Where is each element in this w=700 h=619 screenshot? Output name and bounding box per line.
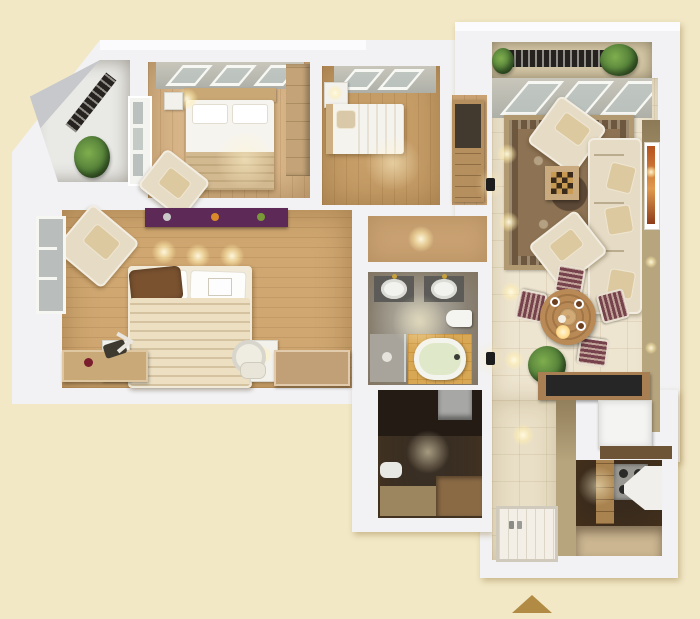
sofa [588, 138, 642, 314]
wall-sconce-icon [486, 178, 495, 191]
cabinet-drawers [455, 152, 481, 198]
media-console [546, 375, 642, 396]
painting-art [647, 146, 655, 224]
shelf-item [163, 213, 171, 221]
master-window [36, 216, 66, 314]
downlight [152, 240, 176, 264]
table-candle-glow [556, 325, 570, 339]
shelf-item [257, 213, 265, 221]
bed-pillow [336, 110, 356, 129]
kitchen-counter [600, 446, 672, 459]
floor-light [215, 130, 275, 190]
utility-toilet [380, 462, 402, 478]
door-glass [133, 102, 143, 124]
bed-headboard [326, 104, 333, 154]
window-pane-icon [377, 69, 425, 90]
bedroom-1-wardrobe [286, 64, 310, 176]
storage-chest [274, 350, 350, 386]
purple-wall-shelf [145, 208, 288, 227]
wall-painting [644, 142, 660, 230]
downlight [220, 244, 244, 268]
utility-wood-shelf [436, 476, 482, 516]
floor-light [578, 466, 618, 506]
floor-light [406, 430, 450, 474]
bedroom-2-window-band [334, 66, 436, 93]
window-pane-icon [209, 65, 257, 86]
shower-drain [382, 352, 392, 362]
wall-light [645, 256, 657, 268]
downlight [497, 144, 517, 164]
downlight [512, 424, 534, 446]
wrought-iron-railing-icon [500, 50, 606, 67]
armchair-pillow [553, 111, 592, 148]
bed-duvet [130, 298, 250, 386]
utility-room-floor [378, 390, 482, 518]
window-bar [39, 247, 57, 250]
armchair-pillow [548, 227, 585, 263]
chess-coffee-table [545, 166, 579, 200]
table-cup [574, 299, 584, 309]
pouf [240, 362, 266, 379]
ceiling-light [392, 294, 448, 350]
table-plate [558, 315, 566, 323]
potted-plant-icon [600, 44, 638, 76]
round-dining-table [540, 289, 596, 345]
table-cup [550, 297, 560, 307]
watermark-triangle-icon [512, 595, 552, 613]
table-cup [576, 321, 586, 331]
door-glass [133, 154, 143, 176]
floor-light [365, 135, 421, 191]
bed-pillow [192, 104, 228, 124]
toiletry-bottles [509, 521, 514, 529]
hallway-tv-cabinet [452, 100, 484, 202]
table-lamp-icon [327, 85, 343, 101]
downlight [499, 212, 519, 232]
bed-pillow [232, 104, 268, 124]
bed-book [208, 278, 232, 296]
potted-plant-icon [492, 48, 514, 74]
faucet-icon [442, 274, 447, 279]
refrigerator [598, 400, 652, 448]
bathroom-floor [368, 272, 478, 385]
window-pane-icon [165, 65, 213, 86]
shelf-item [211, 213, 219, 221]
entry-accent-wall [556, 400, 576, 556]
sink-basin [381, 279, 407, 299]
tv-panel [455, 104, 481, 148]
shower-tray [496, 506, 558, 562]
wall-light [645, 342, 657, 354]
downlight [504, 350, 524, 370]
faucet-icon [392, 274, 397, 279]
armchair-pillow [82, 223, 122, 262]
window-bar [39, 277, 57, 280]
toiletry-bottles [517, 521, 522, 529]
wall-top-face-left [100, 40, 366, 50]
armchair-pillow [157, 166, 193, 201]
wall-light [645, 166, 657, 178]
floorplan-canvas [0, 0, 700, 619]
door-glass [133, 128, 143, 150]
burner [619, 469, 628, 478]
chess-board [551, 172, 573, 194]
downlight [408, 226, 434, 252]
sofa-pillow [604, 204, 634, 236]
kitchen-floor-light [576, 526, 662, 556]
washing-machine [438, 390, 472, 420]
wall-top-face-right [455, 22, 680, 31]
bench-red-item [84, 358, 93, 367]
potted-plant-icon [74, 136, 110, 178]
rocking-toy [100, 334, 136, 364]
sink-basin [431, 279, 457, 299]
wall-hung-toilet [446, 310, 472, 327]
tub-faucet-icon [454, 354, 460, 360]
wall-sconce-icon [486, 352, 495, 365]
bedroom-1-window-band [156, 62, 304, 89]
sofa-pillow [605, 161, 637, 194]
bedroom-1-nightstand [164, 92, 183, 110]
balcony-top-right [492, 42, 652, 78]
